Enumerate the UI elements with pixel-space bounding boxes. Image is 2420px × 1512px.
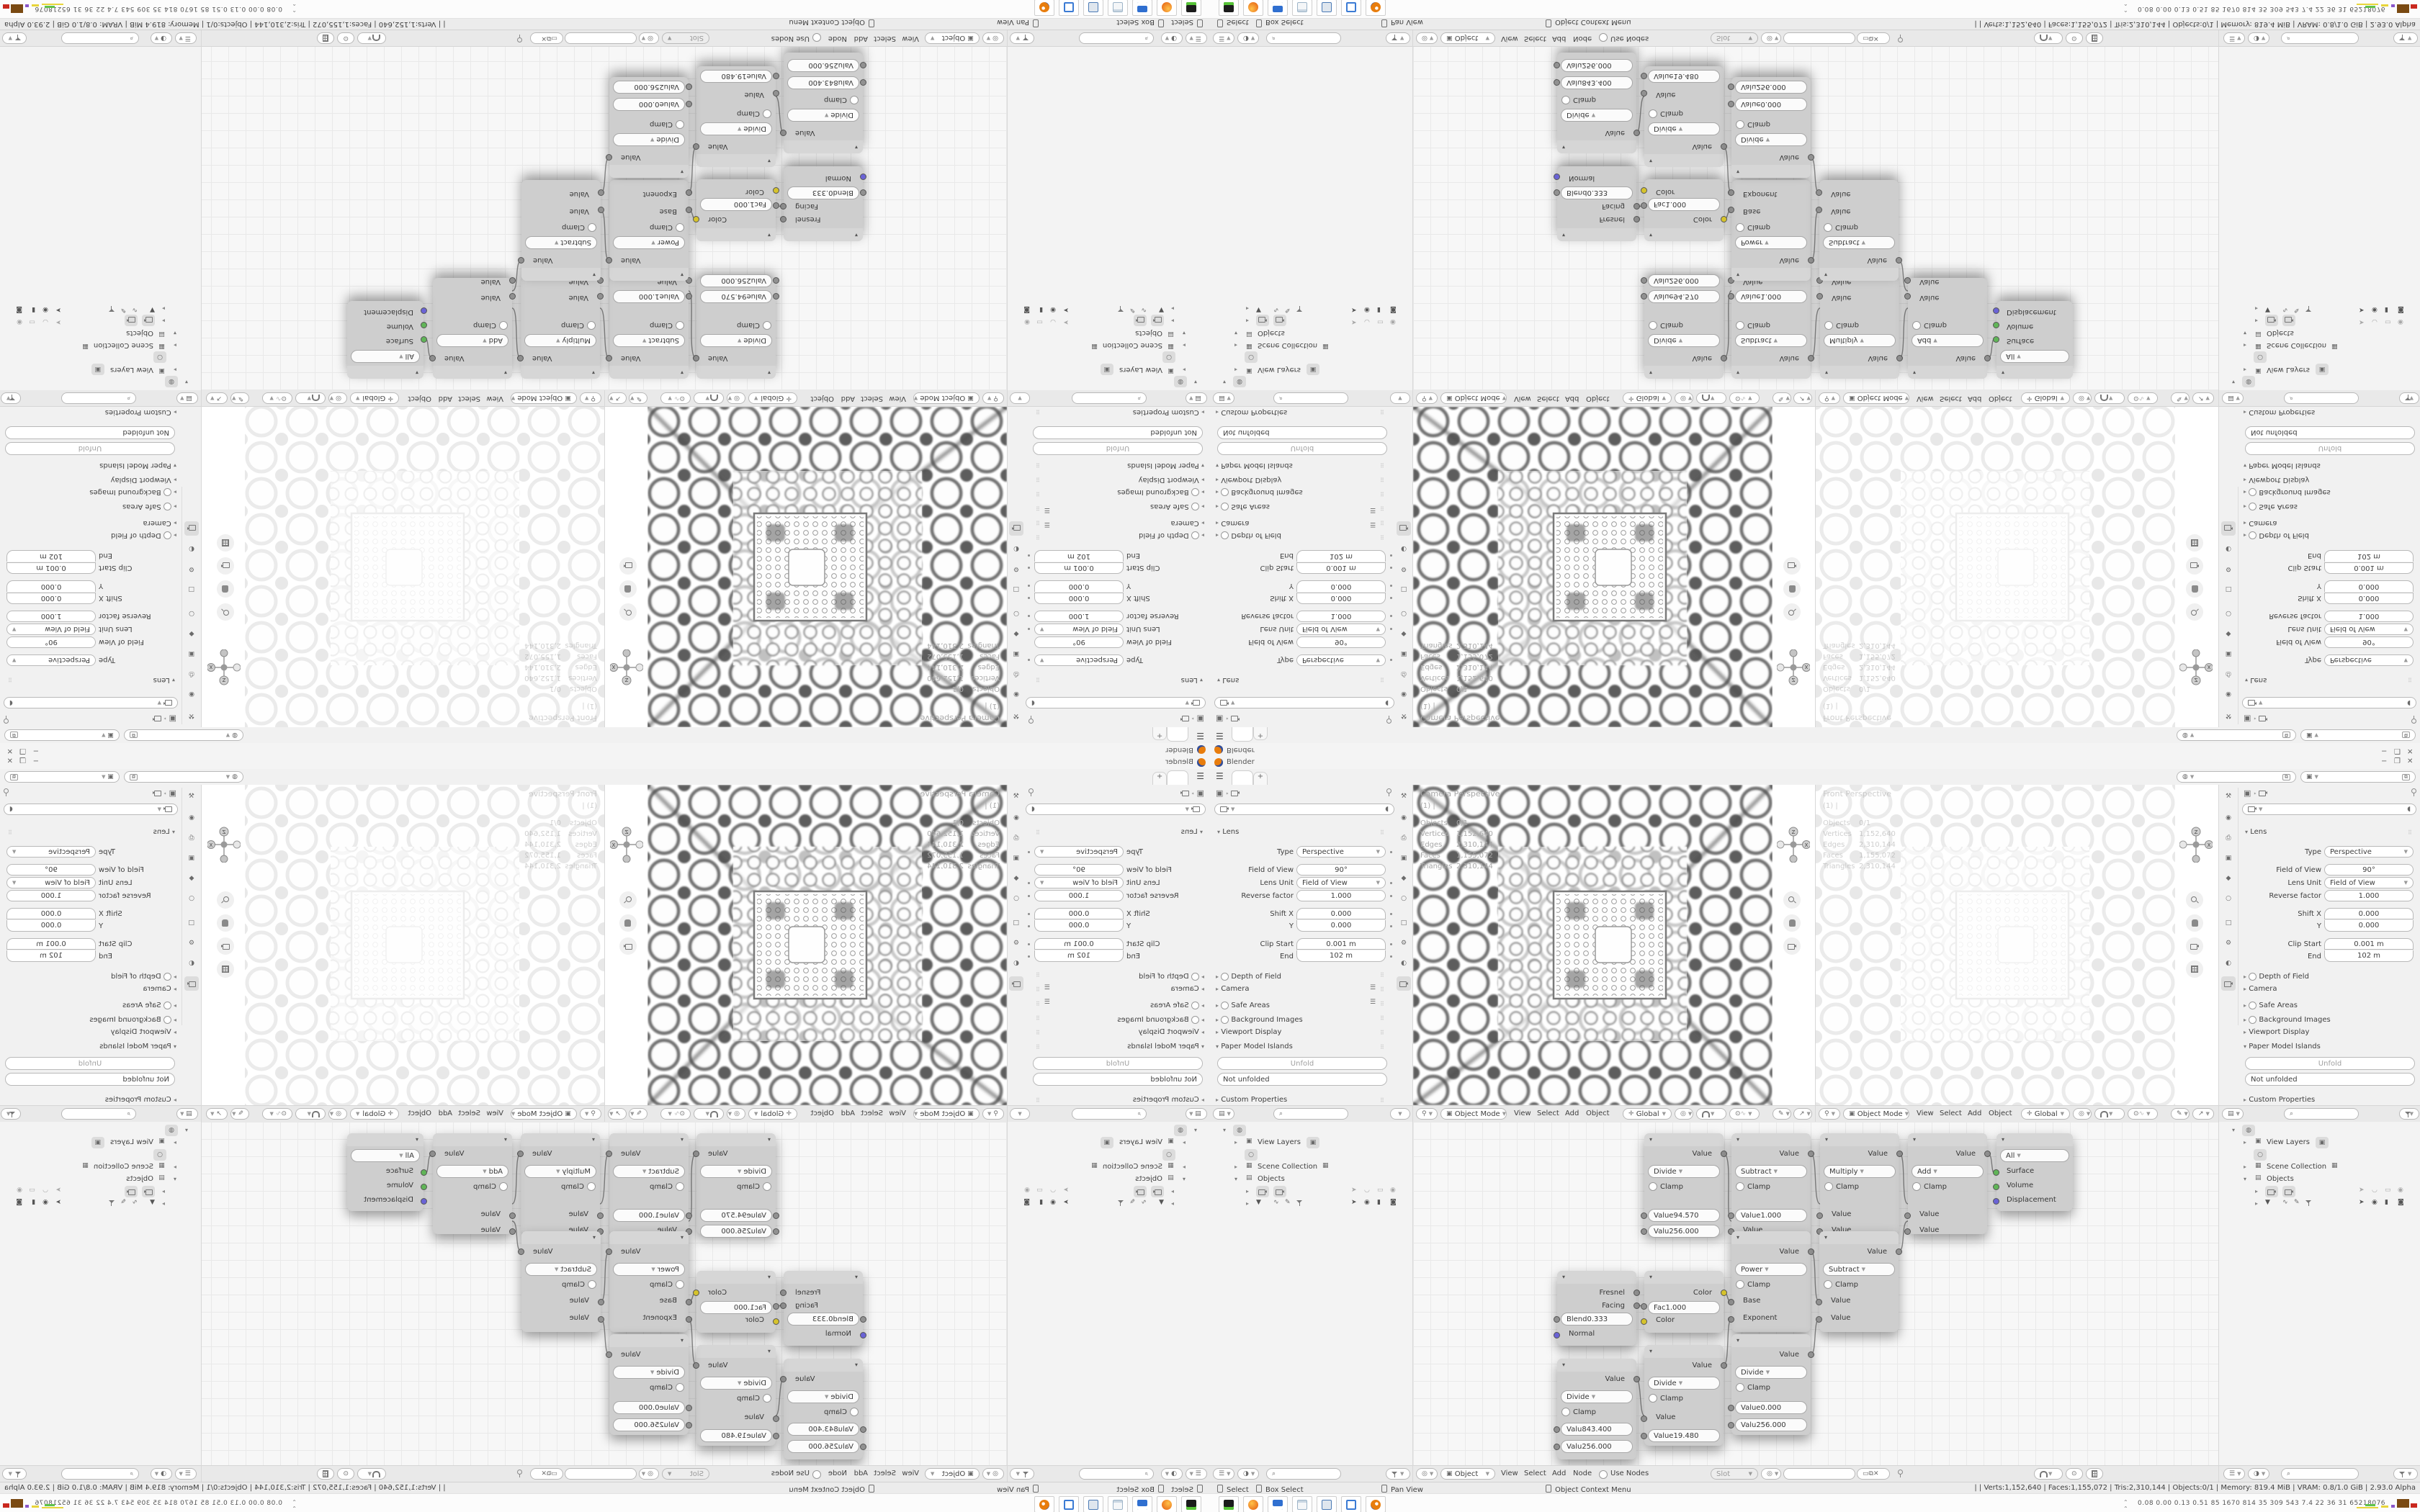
- tab-output[interactable]: ⎙: [1397, 667, 1411, 681]
- scene-icon[interactable]: ◍: [2242, 1125, 2255, 1136]
- collapse-arrow[interactable]: ▾: [1649, 1136, 1652, 1143]
- proportional-edit-toggle[interactable]: ⊙∿▼: [660, 1108, 691, 1120]
- outliner-item-objects[interactable]: Objects: [1135, 329, 1162, 337]
- workspace-tab-active[interactable]: [1232, 726, 1253, 742]
- outliner-item-scene-collection[interactable]: Scene Collection: [2267, 1163, 2326, 1171]
- shift-x-field[interactable]: 0.000: [6, 593, 96, 604]
- editor-type-button[interactable]: ⚲▼: [982, 392, 1004, 404]
- tab-object[interactable]: □: [2221, 916, 2236, 930]
- menu-select[interactable]: Select: [1524, 1470, 1546, 1477]
- orientation-dropdown[interactable]: ✛ Global▼: [2021, 1108, 2070, 1120]
- app-window-tool[interactable]: [1317, 1496, 1337, 1512]
- value-field[interactable]: Valu256.000: [700, 1225, 772, 1238]
- node-math-add[interactable]: ▾ Value Add▼ Clamp Value Value: [1908, 1133, 1987, 1234]
- value-field[interactable]: Value1.000: [1735, 290, 1807, 303]
- scene-selector[interactable]: ◍▼ ⧉: [2177, 771, 2296, 783]
- pin-icon[interactable]: [1897, 1470, 1903, 1480]
- node-math-divide-3[interactable]: ▾ Value Divide▼ Clamp Value Value19.480: [696, 66, 776, 167]
- operation-dropdown[interactable]: Subtract▼: [1735, 1165, 1807, 1178]
- fov-field[interactable]: 90°: [2324, 636, 2414, 648]
- app-notepad[interactable]: [1108, 0, 1128, 16]
- collection-badge-icon[interactable]: ▦: [1322, 343, 1329, 349]
- unfold-button[interactable]: Unfold: [1033, 442, 1203, 455]
- clamp-checkbox[interactable]: [676, 321, 684, 330]
- viewport-disable-icon[interactable]: ▭: [2385, 1187, 2391, 1194]
- tab-view-layer[interactable]: ▣: [184, 647, 199, 661]
- node-math-divide-3[interactable]: ▾ Value Divide▼ Clamp Value Value19.480: [1644, 66, 1724, 167]
- outliner-item-objects[interactable]: Objects: [2267, 1175, 2294, 1183]
- view-layer-selector[interactable]: ▣▼ ⧉: [2300, 729, 2416, 741]
- clamp-checkbox[interactable]: [763, 321, 771, 330]
- lens-unit-field[interactable]: Field of View▼: [1296, 877, 1386, 888]
- operation-dropdown[interactable]: Divide▼: [787, 1390, 859, 1403]
- tab-scene[interactable]: ◆: [184, 871, 199, 886]
- proportional-edit-toggle[interactable]: ⊙∿▼: [1729, 392, 1760, 404]
- material-icon-dropdown[interactable]: ◎▼: [1761, 32, 1781, 44]
- shield-icon[interactable]: ◖: [1031, 700, 1035, 706]
- shift-y-field[interactable]: 0.000: [1296, 580, 1386, 592]
- reverse-factor-field[interactable]: 1.000: [6, 890, 96, 901]
- minimize-button[interactable]: −: [2381, 747, 2387, 755]
- clamp-checkbox[interactable]: [588, 1280, 596, 1289]
- node-invert[interactable]: ▾ Color Fac1.000 Color: [696, 1271, 776, 1333]
- workspace-tab-add[interactable]: +: [1253, 726, 1268, 740]
- view-layer-badge-icon[interactable]: ▣: [2316, 364, 2329, 375]
- node-math-divide-2[interactable]: ▾ Value Divide▼ Clamp Valu843.400 Valu25…: [1557, 53, 1636, 153]
- camera-view-icon[interactable]: [619, 557, 637, 575]
- reverse-factor-field[interactable]: 1.000: [1296, 611, 1386, 622]
- editor-type-button[interactable]: ▤▼: [2222, 392, 2244, 404]
- camera-object-icon[interactable]: [142, 1186, 155, 1197]
- shift-x-field[interactable]: 0.000: [1296, 908, 1386, 919]
- viewport-front[interactable]: Front Perspective (1) | Objects0/1 Verti…: [202, 785, 605, 1122]
- world-icon[interactable]: ○: [2254, 351, 2267, 363]
- new-material-button[interactable]: ▭⧉✕: [1857, 1468, 1890, 1480]
- world-icon[interactable]: ○: [1245, 1149, 1258, 1161]
- menu-object[interactable]: Object: [408, 395, 431, 402]
- node-math-divide[interactable]: ▾ Value Divide▼ Clamp Value94.570 Valu25…: [696, 278, 776, 379]
- bg-images-checkbox[interactable]: [2249, 1016, 2257, 1024]
- zoom-tool-icon[interactable]: [619, 603, 637, 621]
- collapse-arrow[interactable]: ▾: [768, 369, 771, 376]
- outliner-item-view-layers[interactable]: View Layers: [1258, 1138, 1301, 1146]
- value-field[interactable]: Value19.480: [1648, 1429, 1720, 1442]
- shader-mode-dropdown[interactable]: ▣ Object▼: [1440, 32, 1495, 44]
- node-math-add[interactable]: ▾ Value Add▼ Clamp Value Value: [433, 1133, 512, 1234]
- node-math-power[interactable]: ▾ Value Power▼ Clamp Base Exponent: [609, 1231, 689, 1332]
- app-floppy-64[interactable]: [1268, 0, 1288, 16]
- editor-type-button[interactable]: ◎▼: [1416, 32, 1438, 44]
- orientation-dropdown[interactable]: ✛ Global▼: [748, 392, 797, 404]
- ortho-grid-icon[interactable]: [2186, 960, 2203, 978]
- camera-object-icon[interactable]: [142, 315, 155, 326]
- value-field[interactable]: Valu256.000: [1561, 59, 1633, 72]
- viewport-disable-icon[interactable]: ▮: [32, 1200, 35, 1206]
- selectable-icon[interactable]: ➤: [1351, 1200, 1357, 1206]
- dof-checkbox[interactable]: [2249, 973, 2257, 981]
- display-mode-button[interactable]: ◑▼: [1237, 1468, 1259, 1480]
- app-blender[interactable]: [1366, 1496, 1386, 1512]
- target-dropdown[interactable]: All▼: [2000, 350, 2069, 363]
- world-icon[interactable]: ○: [1162, 351, 1175, 363]
- tab-output[interactable]: ⎙: [184, 667, 199, 681]
- lens-unit-field[interactable]: Field of View▼: [2324, 877, 2414, 888]
- minimize-button[interactable]: −: [33, 757, 39, 765]
- outliner-item-objects[interactable]: Objects: [126, 1175, 153, 1183]
- pin-icon[interactable]: [1897, 32, 1903, 42]
- operation-dropdown[interactable]: Divide▼: [700, 1377, 772, 1390]
- shift-y-field[interactable]: 0.000: [1296, 920, 1386, 932]
- selectable-icon[interactable]: ➤: [2359, 1200, 2365, 1206]
- search-input[interactable]: ⌕: [2284, 392, 2359, 404]
- tab-scene[interactable]: ◆: [1397, 871, 1411, 886]
- tab-view-layer[interactable]: ▣: [184, 851, 199, 865]
- outliner-item-objects[interactable]: Objects: [1135, 1175, 1162, 1183]
- navigation-gizmo[interactable]: Z X: [207, 827, 241, 863]
- hide-icon[interactable]: ◉: [1050, 306, 1056, 312]
- safe-areas-checkbox[interactable]: [163, 503, 171, 510]
- collapse-arrow[interactable]: ▾: [1649, 369, 1652, 376]
- tab-object-data[interactable]: [1009, 976, 1023, 991]
- clip-start-field[interactable]: 0.001 m: [2324, 938, 2414, 950]
- viewport-disable-icon[interactable]: ▮: [1039, 306, 1043, 312]
- tab-view-layer[interactable]: ▣: [1009, 851, 1023, 865]
- app-notepad[interactable]: [1292, 1496, 1312, 1512]
- camera-object-icon[interactable]: [1151, 1186, 1164, 1197]
- orientation-dropdown[interactable]: ✛ Global▼: [350, 1108, 399, 1120]
- editor-type-button[interactable]: ◎▼: [1416, 1468, 1438, 1480]
- snap-toggle[interactable]: ▼: [694, 1108, 724, 1120]
- search-input[interactable]: ⌕: [2281, 32, 2359, 44]
- pivot-dropdown[interactable]: ◎▼: [2073, 1108, 2092, 1120]
- gizmo-toggle[interactable]: ↗▼: [1793, 392, 1812, 404]
- camera-data-icon[interactable]: [2282, 1186, 2295, 1197]
- display-mode-button[interactable]: ◑▼: [2248, 1468, 2269, 1480]
- new-material-button[interactable]: ▭⧉✕: [1857, 32, 1890, 44]
- operation-dropdown[interactable]: Subtract▼: [1823, 236, 1895, 249]
- proportional-edit-toggle[interactable]: ⊙∿▼: [2128, 1108, 2158, 1120]
- mode-dropdown[interactable]: ▣ Object Mode▼: [1440, 392, 1507, 404]
- selectable-icon[interactable]: ➤: [55, 306, 61, 312]
- selectable-icon[interactable]: ➤: [55, 1187, 61, 1194]
- app-firefox[interactable]: [1243, 0, 1263, 16]
- snap-toggle[interactable]: ▼: [357, 1468, 386, 1480]
- clamp-checkbox[interactable]: [763, 1394, 771, 1403]
- render-disable-icon[interactable]: ◙: [16, 1200, 22, 1206]
- shield-icon[interactable]: ◖: [9, 700, 13, 706]
- fov-field[interactable]: 90°: [1034, 636, 1124, 648]
- annotate-dropdown[interactable]: ✎▼: [629, 392, 647, 404]
- safe-areas-checkbox[interactable]: [2249, 1002, 2257, 1009]
- grid-snap-toggle[interactable]: [2086, 1468, 2103, 1480]
- tab-render[interactable]: ◉: [184, 687, 199, 701]
- navigation-gizmo[interactable]: Z X: [1777, 827, 1810, 863]
- operation-dropdown[interactable]: Subtract▼: [613, 1165, 685, 1178]
- workspace-tab-active[interactable]: [1167, 726, 1188, 742]
- value-field[interactable]: Value0.000: [1735, 98, 1807, 111]
- tab-object-data[interactable]: [1397, 976, 1411, 991]
- collection-badge-icon[interactable]: ▦: [82, 1163, 89, 1169]
- app-notepad[interactable]: [1108, 1496, 1128, 1512]
- filter-button[interactable]: ▼: [1, 1108, 21, 1120]
- camera-data-icon[interactable]: [153, 714, 161, 722]
- node-material-output[interactable]: ▾ All▼ Surface Volume Displacement: [1996, 301, 2073, 379]
- tab-view-layer[interactable]: ▣: [1397, 647, 1411, 661]
- node-math-divide[interactable]: ▾ Value Divide▼ Clamp Value94.570 Valu25…: [1644, 1133, 1724, 1234]
- annotate-dropdown[interactable]: ✎▼: [2171, 1108, 2190, 1120]
- tab-tool[interactable]: ⚒: [184, 789, 199, 804]
- clip-end-field[interactable]: 102 m: [1034, 550, 1124, 562]
- clamp-checkbox[interactable]: [763, 1182, 771, 1191]
- node-math-multiply[interactable]: ▾ Value Multiply▼ Clamp Value Value: [521, 278, 600, 379]
- reverse-factor-field[interactable]: 1.000: [2324, 890, 2414, 901]
- tab-physics[interactable]: ◐: [2221, 956, 2236, 971]
- value-field[interactable]: Value0.000: [613, 1401, 685, 1414]
- menu-select[interactable]: Select: [1537, 1110, 1559, 1117]
- camera-data-icon[interactable]: [1231, 790, 1240, 798]
- menu-hamburger-icon[interactable]: ☰: [1216, 771, 1224, 781]
- node-layer-weight[interactable]: ▾ Fresnel Facing Blend0.333 Normal: [1557, 166, 1636, 241]
- blend-field[interactable]: Blend0.333: [1561, 186, 1633, 199]
- selectable-icon[interactable]: ➤: [1351, 318, 1357, 325]
- operation-dropdown[interactable]: Divide▼: [1735, 1366, 1807, 1379]
- camera-data-icon[interactable]: [1180, 714, 1189, 722]
- editor-type-button[interactable]: ⚲▼: [1416, 392, 1438, 404]
- unfold-status-field[interactable]: Not unfolded: [5, 426, 175, 439]
- use-nodes-checkbox[interactable]: [1599, 33, 1608, 42]
- tab-object[interactable]: □: [1397, 916, 1411, 930]
- datablock-selector[interactable]: ▼ ◖: [4, 697, 178, 708]
- clamp-checkbox[interactable]: [1912, 321, 1921, 330]
- search-input[interactable]: ⌕: [61, 1468, 139, 1480]
- navigation-gizmo[interactable]: Z X: [1777, 649, 1810, 685]
- node-layer-weight[interactable]: ▾ Fresnel Facing Blend0.333 Normal: [1557, 1271, 1636, 1346]
- safe-areas-checkbox[interactable]: [1191, 503, 1199, 510]
- display-mode-button[interactable]: ◑▼: [151, 1468, 172, 1480]
- navigation-gizmo[interactable]: Z X: [610, 827, 643, 863]
- world-icon[interactable]: ○: [153, 351, 166, 363]
- camera-data-icon[interactable]: [1134, 1186, 1147, 1197]
- fov-field[interactable]: 90°: [1296, 636, 1386, 648]
- node-math-power[interactable]: ▾ Value Power▼ Clamp Base Exponent: [1731, 1231, 1811, 1332]
- unfold-status-field[interactable]: Not unfolded: [5, 1073, 175, 1086]
- shield-icon[interactable]: ◖: [9, 806, 13, 813]
- slot-dropdown[interactable]: Slot▼: [1711, 32, 1758, 44]
- snap-toggle[interactable]: ▼: [2094, 1108, 2125, 1120]
- render-disable-icon[interactable]: ◙: [1023, 306, 1030, 312]
- mode-dropdown[interactable]: ▣ Object Mode▼: [1843, 1108, 1909, 1120]
- operation-dropdown[interactable]: Add▼: [436, 1165, 508, 1178]
- zoom-tool-icon[interactable]: [619, 891, 637, 909]
- node-math-divide-2[interactable]: ▾ Value Divide▼ Clamp Valu843.400 Valu25…: [1557, 1359, 1636, 1459]
- node-layer-weight[interactable]: ▾ Fresnel Facing Blend0.333 Normal: [784, 1271, 863, 1346]
- tab-physics[interactable]: ◐: [2221, 541, 2236, 556]
- lens-unit-field[interactable]: Field of View▼: [1296, 624, 1386, 635]
- clip-start-field[interactable]: 0.001 m: [6, 938, 96, 950]
- search-input[interactable]: ⌕: [2281, 1468, 2359, 1480]
- scene-icon[interactable]: ◍: [1233, 376, 1246, 387]
- scene-icon[interactable]: ◍: [1174, 1125, 1187, 1136]
- datablock-selector[interactable]: ▼ ◖: [2242, 804, 2416, 815]
- unfold-button[interactable]: Unfold: [1217, 442, 1387, 455]
- value-field[interactable]: Valu256.000: [1648, 1225, 1720, 1238]
- material-icon-dropdown[interactable]: ◎▼: [639, 1468, 659, 1480]
- type-field[interactable]: Perspective▼: [1034, 654, 1124, 666]
- value-field[interactable]: Value0.000: [1735, 1401, 1807, 1414]
- clip-start-field[interactable]: 0.001 m: [6, 562, 96, 574]
- orientation-dropdown[interactable]: ✛ Global▼: [1623, 1108, 1672, 1120]
- node-math-divide[interactable]: ▾ Value Divide▼ Clamp Value94.570 Valu25…: [1644, 278, 1724, 379]
- snap-toggle[interactable]: ▼: [357, 32, 386, 44]
- search-input[interactable]: ⌕: [61, 32, 139, 44]
- tab-render[interactable]: ◉: [2221, 811, 2236, 825]
- value-field[interactable]: Value1.000: [613, 290, 685, 303]
- unfold-button[interactable]: Unfold: [5, 1057, 175, 1070]
- type-field[interactable]: Perspective▼: [6, 654, 96, 666]
- object-icon[interactable]: ▣: [1197, 714, 1204, 724]
- menu-view[interactable]: View: [1514, 1110, 1531, 1117]
- selectable-icon[interactable]: ➤: [2359, 1187, 2365, 1194]
- tab-output[interactable]: ⎙: [184, 831, 199, 845]
- app-floppy-64[interactable]: [1132, 0, 1152, 16]
- tab-view-layer[interactable]: ▣: [1009, 647, 1023, 661]
- editor-type-button[interactable]: ☰▼: [175, 1468, 197, 1480]
- menu-add[interactable]: Add: [841, 1110, 855, 1117]
- mode-dropdown[interactable]: ▣ Object Mode▼: [511, 1108, 577, 1120]
- filter-button[interactable]: ▼: [2399, 392, 2419, 404]
- menu-object[interactable]: Object: [1989, 1110, 2012, 1117]
- clamp-checkbox[interactable]: [1736, 1280, 1744, 1289]
- gizmo-toggle[interactable]: ↗▼: [2192, 1108, 2214, 1120]
- scene-icon[interactable]: ◍: [165, 376, 178, 387]
- reverse-factor-field[interactable]: 1.000: [1034, 611, 1124, 622]
- bg-images-checkbox[interactable]: [163, 488, 171, 496]
- material-name-field[interactable]: [1783, 1468, 1855, 1480]
- clamp-checkbox[interactable]: [1824, 223, 1832, 232]
- search-input[interactable]: ⌕: [1266, 1468, 1341, 1480]
- tab-modifiers[interactable]: ⚙: [2221, 936, 2236, 950]
- blend-field[interactable]: Blend0.333: [787, 186, 859, 199]
- tab-render[interactable]: ◉: [1397, 811, 1411, 825]
- unfold-status-field[interactable]: Not unfolded: [1217, 1073, 1387, 1086]
- filter-button[interactable]: ▼: [1010, 32, 1034, 44]
- tab-scene[interactable]: ◆: [1009, 626, 1023, 641]
- collection-badge-icon[interactable]: ▦: [1091, 343, 1098, 349]
- menu-hamburger-icon[interactable]: ☰: [1196, 731, 1204, 741]
- fov-field[interactable]: 90°: [1034, 864, 1124, 876]
- restore-button[interactable]: ❐: [19, 747, 26, 755]
- outliner-item-scene-collection[interactable]: Scene Collection: [1103, 341, 1162, 349]
- menu-hamburger-icon[interactable]: ☰: [1216, 731, 1224, 741]
- scene-icon[interactable]: ◍: [2242, 376, 2255, 387]
- workspace-tab-add[interactable]: +: [1152, 772, 1167, 786]
- tab-modifiers[interactable]: ⚙: [1397, 562, 1411, 576]
- copy-icon[interactable]: ⧉: [2402, 732, 2410, 739]
- selectable-icon[interactable]: ➤: [1063, 1200, 1069, 1206]
- shift-y-field[interactable]: 0.000: [1034, 920, 1124, 932]
- new-material-button[interactable]: ▭⧉✕: [530, 1468, 563, 1480]
- outliner-item-scene-collection[interactable]: Scene Collection: [1103, 1163, 1162, 1171]
- render-disable-icon[interactable]: ◙: [2398, 306, 2404, 312]
- menu-select[interactable]: Select: [1537, 395, 1559, 402]
- datablock-selector[interactable]: ▼ ◖: [2242, 697, 2416, 708]
- clamp-checkbox[interactable]: [1736, 321, 1744, 330]
- fac-field[interactable]: Fac1.000: [700, 1301, 772, 1314]
- tab-view-layer[interactable]: ▣: [1397, 851, 1411, 865]
- node-math-subtract-2[interactable]: ▾ Value Subtract▼ Clamp Value Value: [1819, 180, 1899, 281]
- datablock-selector[interactable]: ▼ ◖: [1214, 697, 1394, 708]
- tab-tool[interactable]: ⚒: [2221, 708, 2236, 723]
- editor-type-button[interactable]: ◎▼: [982, 32, 1004, 44]
- proportional-edit-toggle[interactable]: ⊙∿▼: [1729, 1108, 1760, 1120]
- viewport-camera[interactable]: Camera Perspective (1) | Objects0/1 Vert…: [1413, 785, 1815, 1122]
- viewport-front[interactable]: Front Perspective (1) | Objects0/1 Verti…: [1815, 785, 2218, 1122]
- scene-selector[interactable]: ◍▼ ⧉: [124, 729, 243, 741]
- app-blender[interactable]: [1034, 1496, 1054, 1512]
- tab-modifiers[interactable]: ⚙: [2221, 562, 2236, 576]
- operation-dropdown[interactable]: Divide▼: [1648, 1377, 1720, 1390]
- pan-tool-icon[interactable]: [217, 914, 234, 932]
- clamp-checkbox[interactable]: [1912, 1182, 1921, 1191]
- navigation-gizmo[interactable]: Z X: [610, 649, 643, 685]
- lens-unit-field[interactable]: Field of View▼: [1034, 624, 1124, 635]
- viewport-camera[interactable]: Camera Perspective (1) | Objects0/1 Vert…: [605, 785, 1007, 1122]
- node-math-divide[interactable]: ▾ Value Divide▼ Clamp Value94.570 Valu25…: [696, 1133, 776, 1234]
- pivot-dropdown[interactable]: ◎▼: [1675, 1108, 1693, 1120]
- editor-type-button[interactable]: ▤▼: [176, 392, 198, 404]
- target-dropdown[interactable]: All▼: [2000, 1149, 2069, 1162]
- orientation-dropdown[interactable]: ✛ Global▼: [1623, 392, 1672, 404]
- tab-scene[interactable]: ◆: [184, 626, 199, 641]
- search-input[interactable]: ⌕: [1072, 1108, 1147, 1120]
- restore-button[interactable]: ❐: [2394, 747, 2401, 755]
- camera-data-icon[interactable]: [1273, 1186, 1286, 1197]
- tab-render[interactable]: ◉: [2221, 687, 2236, 701]
- material-name-field[interactable]: [565, 1468, 637, 1480]
- snap-toggle[interactable]: ▼: [2034, 32, 2063, 44]
- pin-icon[interactable]: [2411, 714, 2416, 724]
- material-name-field[interactable]: [1783, 32, 1855, 44]
- menu-object[interactable]: Object: [810, 1110, 834, 1117]
- tab-object-data[interactable]: [184, 976, 199, 991]
- editor-type-button[interactable]: ▤▼: [2222, 1108, 2244, 1120]
- fac-field[interactable]: Fac1.000: [1648, 198, 1720, 211]
- app-window-tool[interactable]: [1083, 1496, 1103, 1512]
- collection-badge-icon[interactable]: ▦: [2331, 343, 2338, 349]
- pan-tool-icon[interactable]: [2186, 580, 2203, 598]
- operation-dropdown[interactable]: Add▼: [1912, 334, 1984, 347]
- camera-data-icon[interactable]: [2282, 315, 2295, 326]
- menu-select[interactable]: Select: [458, 395, 480, 402]
- copy-icon[interactable]: ⧉: [2402, 774, 2410, 780]
- shader-editor[interactable]: ▾ Value Divide▼ Clamp Value94.570 Valu25…: [202, 1122, 1007, 1482]
- overlap-toggle[interactable]: ⊙: [337, 32, 354, 44]
- copy-icon[interactable]: ⧉: [2282, 774, 2290, 780]
- hide-icon[interactable]: ◉: [2372, 1200, 2378, 1206]
- hide-icon[interactable]: ◉: [1050, 1200, 1056, 1206]
- hide-icon[interactable]: ◡: [1364, 318, 1370, 325]
- hide-icon[interactable]: ◡: [2372, 1187, 2378, 1194]
- world-icon[interactable]: ○: [153, 1149, 166, 1161]
- filter-button[interactable]: ▼: [2, 1468, 27, 1480]
- menu-view[interactable]: View: [486, 1110, 503, 1117]
- hide-icon[interactable]: ◡: [42, 1187, 48, 1194]
- collection-badge-icon[interactable]: ▦: [1322, 1163, 1329, 1169]
- render-disable-icon[interactable]: ◙: [1390, 1200, 1397, 1206]
- menu-view[interactable]: View: [1917, 1110, 1934, 1117]
- tab-object-data[interactable]: [2221, 976, 2236, 991]
- filter-button[interactable]: ▼: [1386, 1468, 1410, 1480]
